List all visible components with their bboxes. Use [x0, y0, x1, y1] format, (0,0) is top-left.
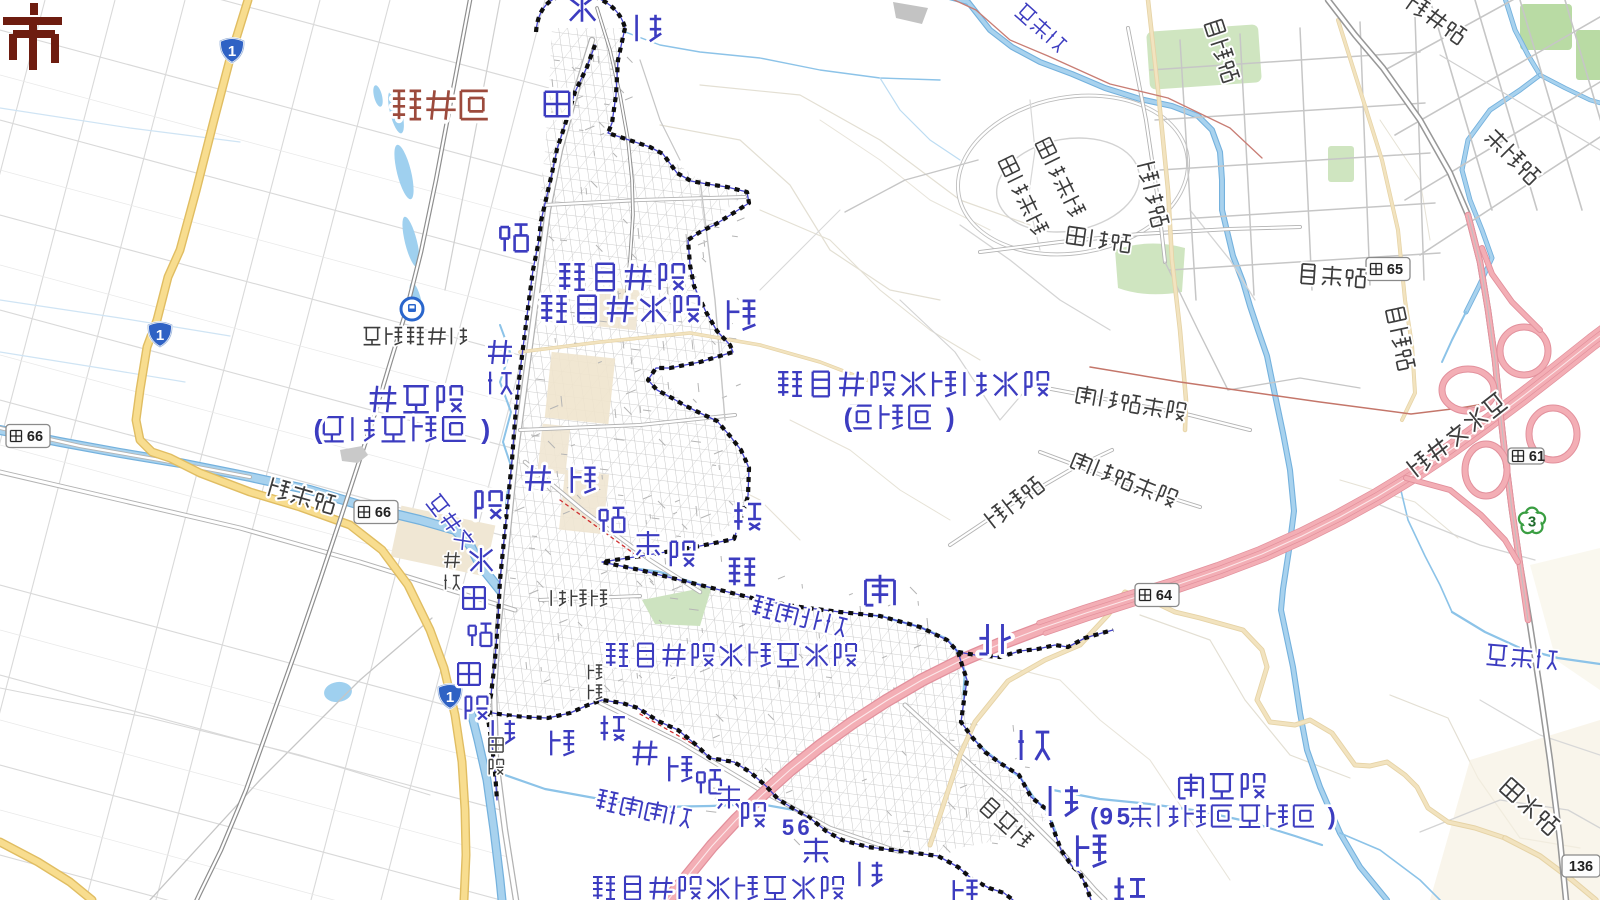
svg-text:6: 6: [797, 815, 809, 840]
svg-text:1: 1: [228, 43, 236, 60]
svg-text:(: (: [1090, 804, 1098, 831]
svg-text:136: 136: [1569, 859, 1593, 875]
svg-text:3: 3: [1528, 514, 1536, 531]
svg-text:1: 1: [156, 327, 164, 344]
svg-text:): ): [946, 402, 955, 432]
svg-text:65: 65: [1387, 262, 1403, 278]
svg-text:): ): [1328, 804, 1336, 831]
svg-text:1: 1: [446, 689, 454, 706]
svg-text:61: 61: [1529, 449, 1545, 465]
svg-text:): ): [481, 415, 490, 445]
svg-text:(: (: [844, 402, 853, 432]
svg-text:(: (: [314, 415, 323, 445]
svg-text:64: 64: [1156, 588, 1172, 604]
svg-text:5: 5: [1117, 804, 1130, 831]
svg-text:66: 66: [27, 429, 43, 445]
svg-text:9: 9: [1100, 804, 1113, 831]
svg-text:5: 5: [782, 815, 794, 840]
svg-text:66: 66: [375, 505, 391, 521]
